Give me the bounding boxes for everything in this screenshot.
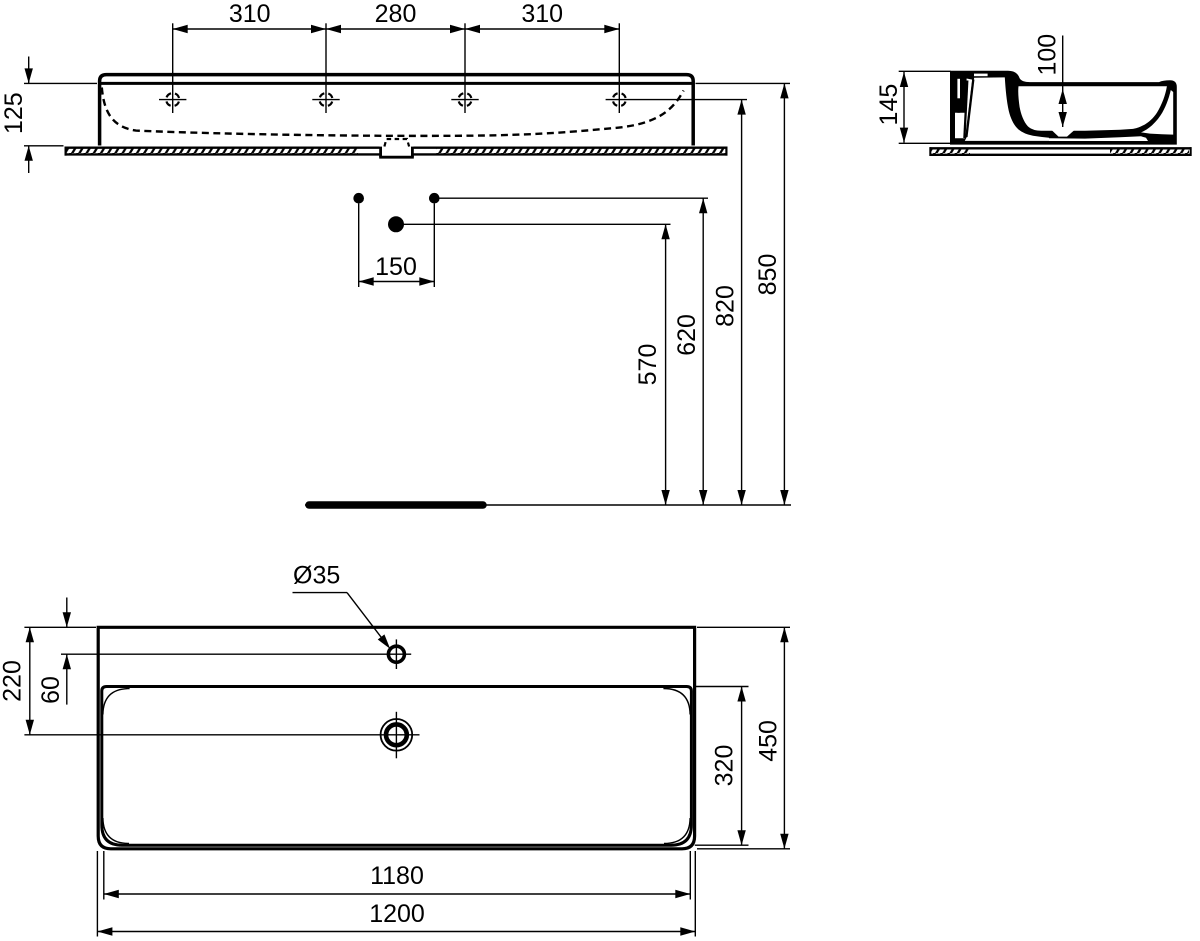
svg-text:100: 100 bbox=[1034, 34, 1062, 76]
svg-text:220: 220 bbox=[0, 660, 27, 702]
svg-text:450: 450 bbox=[755, 720, 783, 762]
svg-text:820: 820 bbox=[712, 285, 740, 327]
svg-text:570: 570 bbox=[634, 344, 662, 386]
svg-text:Ø35: Ø35 bbox=[293, 562, 340, 590]
svg-text:145: 145 bbox=[875, 84, 903, 126]
svg-text:1200: 1200 bbox=[369, 900, 425, 928]
svg-text:850: 850 bbox=[754, 254, 782, 296]
svg-text:150: 150 bbox=[375, 253, 417, 281]
svg-text:310: 310 bbox=[521, 0, 563, 28]
svg-text:60: 60 bbox=[37, 676, 65, 704]
svg-text:310: 310 bbox=[229, 0, 271, 28]
svg-text:125: 125 bbox=[0, 92, 28, 134]
svg-text:320: 320 bbox=[711, 745, 739, 787]
svg-text:280: 280 bbox=[375, 0, 417, 28]
svg-text:620: 620 bbox=[673, 314, 701, 356]
svg-text:1180: 1180 bbox=[370, 862, 424, 890]
